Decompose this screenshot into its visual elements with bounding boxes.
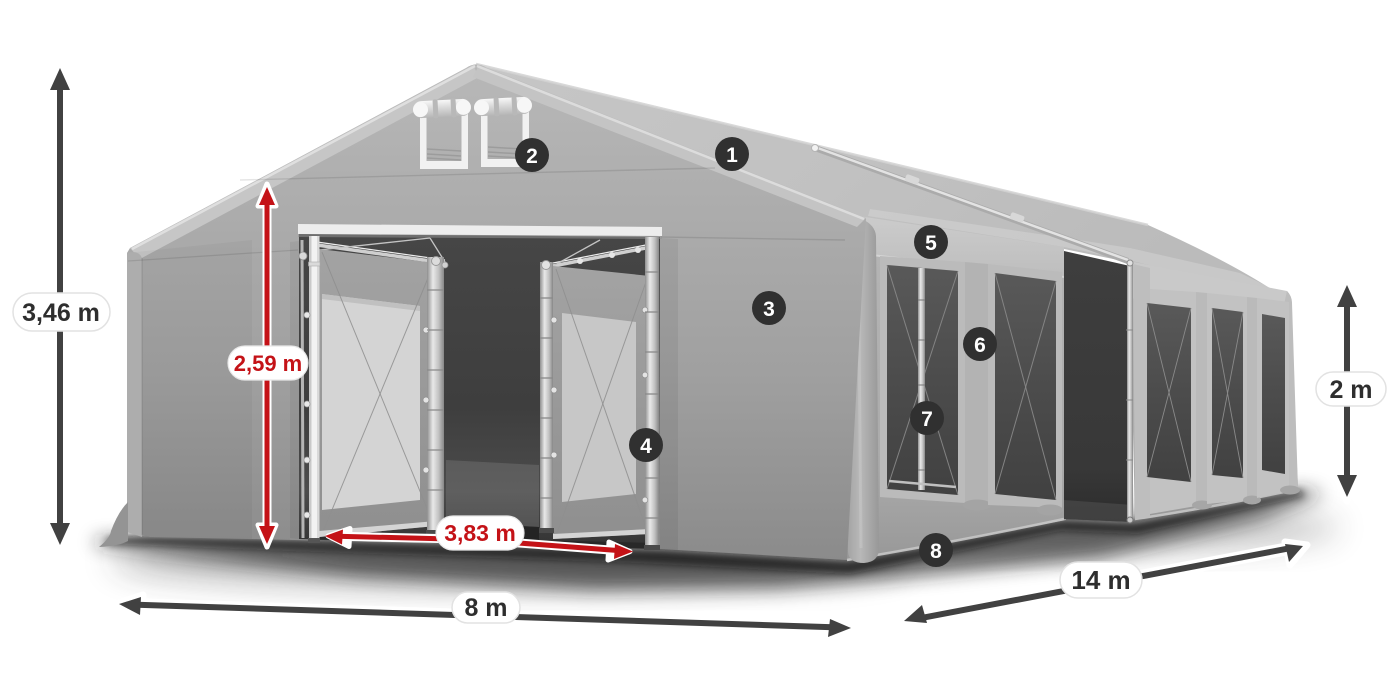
svg-text:6: 6 — [974, 334, 986, 357]
svg-text:5: 5 — [925, 232, 937, 255]
svg-text:4: 4 — [640, 435, 652, 458]
svg-text:2: 2 — [526, 145, 538, 168]
svg-text:2 m: 2 m — [1329, 376, 1372, 404]
svg-text:7: 7 — [921, 408, 933, 431]
svg-text:3: 3 — [763, 298, 775, 321]
svg-text:3,46 m: 3,46 m — [22, 299, 100, 327]
svg-text:8: 8 — [930, 540, 942, 563]
svg-text:3,83 m: 3,83 m — [444, 520, 516, 546]
svg-text:2,59 m: 2,59 m — [234, 351, 303, 376]
svg-text:14 m: 14 m — [1071, 565, 1130, 595]
svg-text:1: 1 — [726, 144, 738, 167]
svg-text:8 m: 8 m — [464, 594, 507, 622]
